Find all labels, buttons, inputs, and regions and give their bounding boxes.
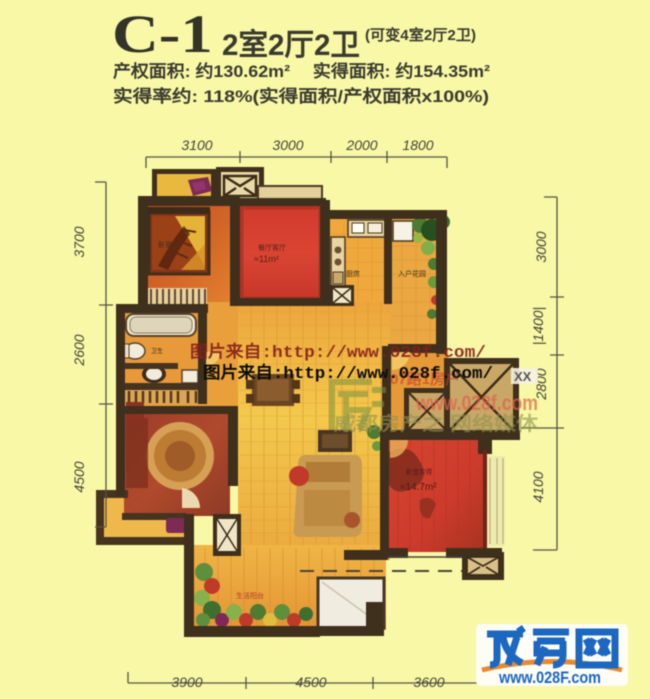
svg-text:3100: 3100 (181, 137, 212, 153)
svg-text:卫生: 卫生 (151, 347, 163, 355)
svg-text:实得率约: 118%(实得面积/产权面积x100%): 实得率约: 118%(实得面积/产权面积x100%) (113, 86, 489, 106)
svg-text:4100: 4100 (530, 471, 546, 502)
svg-text:|1400|: |1400| (530, 307, 546, 345)
svg-text:产权面积: 约130.62m² 实得面积: 约154.35: 产权面积: 约130.62m² 实得面积: 约154.35m² (113, 61, 490, 81)
svg-text:XX: XX (514, 369, 532, 384)
svg-text:厨房: 厨房 (346, 269, 360, 278)
svg-text:图片来自:http://www.028f.com/: 图片来自:http://www.028f.com/ (190, 341, 486, 362)
svg-text:入户花园: 入户花园 (398, 269, 426, 278)
svg-text:4500: 4500 (71, 461, 87, 492)
svg-text:3700: 3700 (71, 226, 87, 257)
svg-text:3600: 3600 (413, 674, 444, 690)
svg-text:www.028f.com: www.028f.com (415, 392, 538, 415)
svg-text:(可变4室2厅2卫): (可变4室2厅2卫) (365, 26, 476, 44)
svg-text:C-1: C-1 (112, 4, 213, 64)
svg-text:www.028F.com: www.028F.com (498, 668, 601, 687)
svg-text:2室2厅2卫: 2室2厅2卫 (222, 28, 360, 62)
svg-text:生活阳台: 生活阳台 (236, 591, 264, 600)
svg-text:≈11m²: ≈11m² (254, 254, 279, 264)
svg-text:3000: 3000 (272, 137, 303, 153)
svg-text:2600: 2600 (71, 334, 87, 366)
svg-text:4500: 4500 (295, 674, 326, 690)
svg-text:1800: 1800 (402, 137, 433, 153)
svg-text:3900: 3900 (171, 674, 202, 690)
svg-text:≈14.7m²: ≈14.7m² (400, 482, 437, 493)
svg-text:卧室实得: 卧室实得 (406, 467, 433, 476)
svg-text:餐厅客厅: 餐厅客厅 (258, 243, 286, 252)
svg-text:图片来自:http://www.028f.com/: 图片来自:http://www.028f.com/ (203, 362, 493, 383)
svg-text:威都房产之 网络媒体: 威都房产之 网络媒体 (334, 412, 539, 435)
svg-text:3000: 3000 (533, 231, 549, 262)
svg-text:卧室: 卧室 (158, 240, 172, 249)
svg-text:2000: 2000 (345, 137, 377, 153)
